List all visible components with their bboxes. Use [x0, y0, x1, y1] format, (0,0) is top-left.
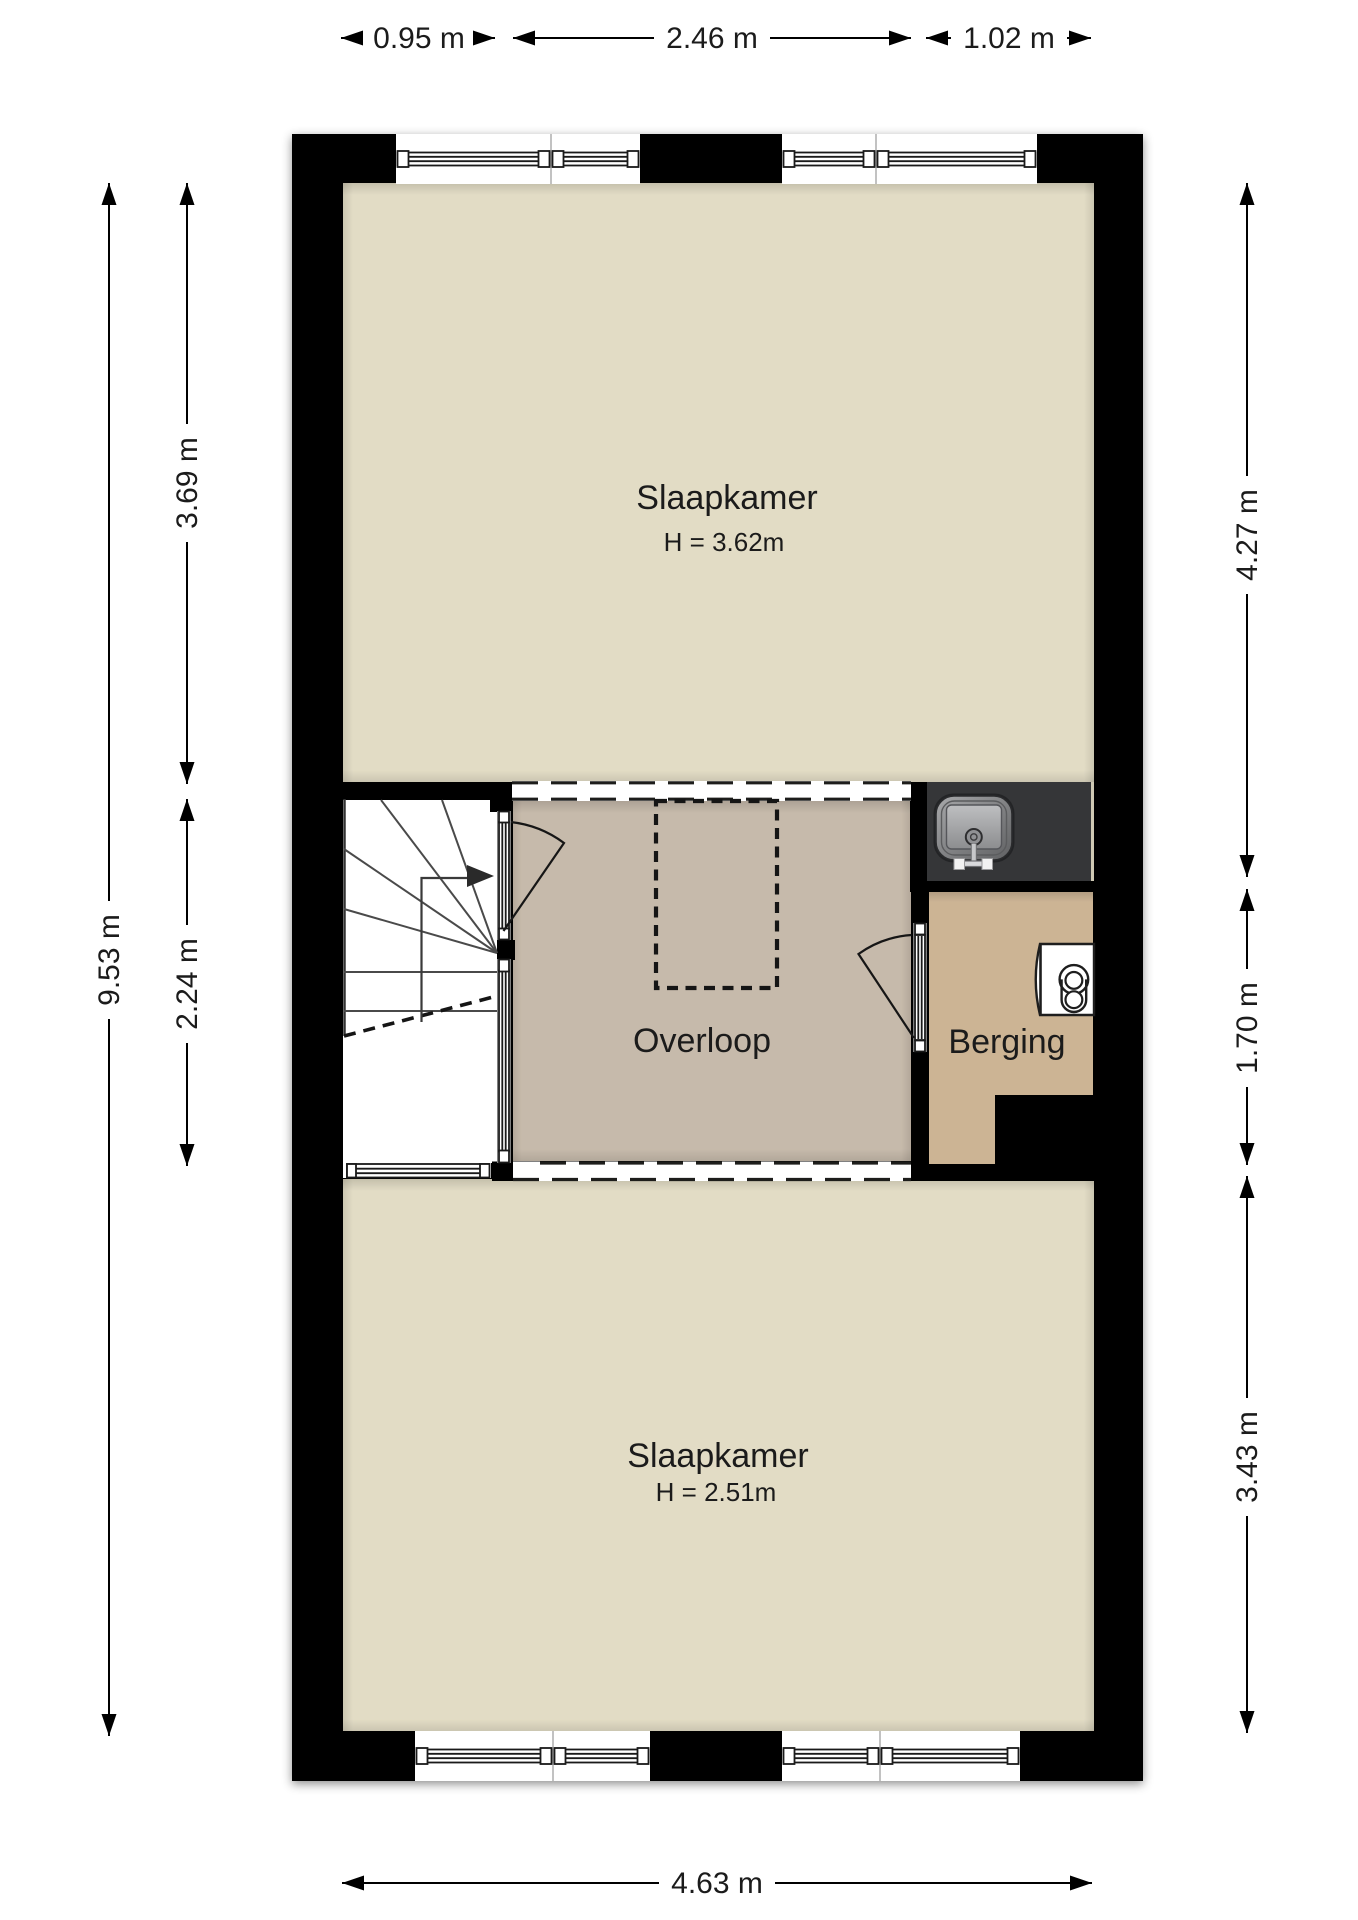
svg-text:4.27 m: 4.27 m — [1231, 489, 1264, 581]
svg-text:H = 3.62m: H = 3.62m — [664, 527, 785, 557]
svg-text:Slaapkamer: Slaapkamer — [636, 479, 817, 517]
svg-text:1.70 m: 1.70 m — [1231, 982, 1264, 1074]
svg-text:3.69 m: 3.69 m — [171, 437, 204, 529]
svg-text:1.02 m: 1.02 m — [963, 22, 1055, 55]
svg-text:Slaapkamer: Slaapkamer — [627, 1437, 808, 1475]
svg-text:2.24 m: 2.24 m — [171, 938, 204, 1030]
svg-text:9.53 m: 9.53 m — [93, 914, 126, 1006]
svg-text:4.63 m: 4.63 m — [671, 1867, 763, 1900]
svg-text:Overloop: Overloop — [633, 1022, 771, 1060]
svg-text:Berging: Berging — [948, 1023, 1065, 1061]
svg-text:0.95 m: 0.95 m — [373, 22, 465, 55]
svg-text:3.43 m: 3.43 m — [1231, 1411, 1264, 1503]
svg-text:H = 2.51m: H = 2.51m — [656, 1477, 777, 1507]
svg-text:2.46 m: 2.46 m — [666, 22, 758, 55]
